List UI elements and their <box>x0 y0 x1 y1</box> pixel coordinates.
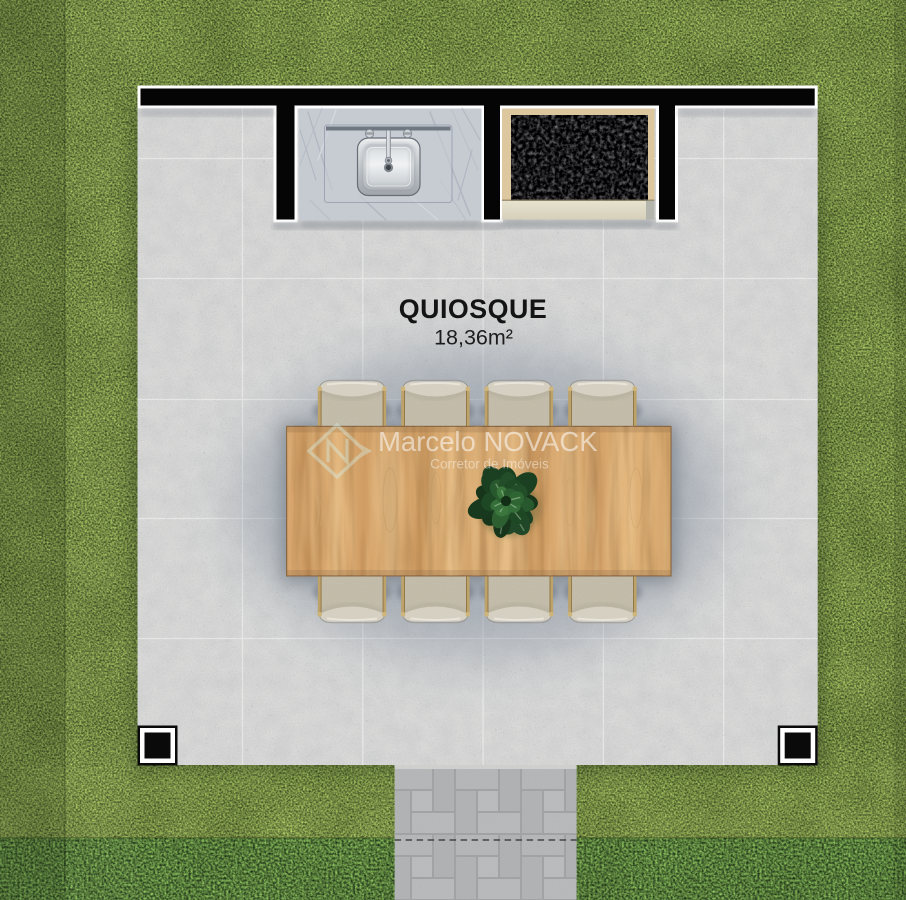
svg-text:18,36m²: 18,36m² <box>434 326 513 350</box>
svg-text:Marcelo NOVACK: Marcelo NOVACK <box>378 426 598 457</box>
svg-text:QUIOSQUE: QUIOSQUE <box>399 294 547 324</box>
svg-text:Corretor de Imóveis: Corretor de Imóveis <box>430 457 549 472</box>
